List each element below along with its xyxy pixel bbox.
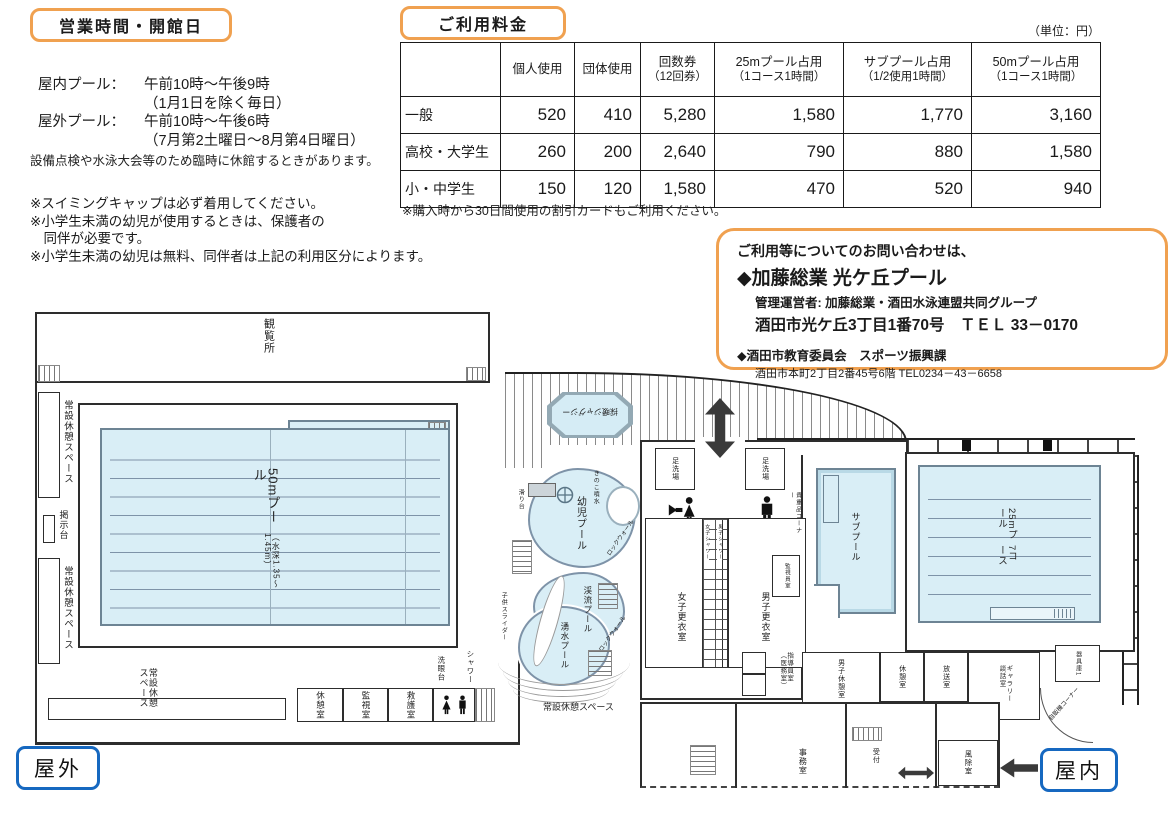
usage-note-line: ※小学生未満の幼児は無料、同伴者は上記の利用区分によります。 [30,248,431,266]
closure-note: 設備点検や水泳大会等のため臨時に休館するときがあります。 [30,150,379,169]
monitor-room-label: 監視員室 [783,563,789,589]
contact-primary-name: ◆加藤総業 光ケ丘プール [737,263,1147,290]
pool50-name: 50mプール [252,468,279,533]
hours-block: 屋内プール：午前10時～午後9時 （1月1日を除く毎日） 屋外プール：午前10時… [38,76,365,150]
usage-note-line: 同伴が必要です。 [30,230,431,248]
contact-operator: 管理運営者: 加藤総業・酒田水泳連盟共同グループ [755,292,1147,311]
hours-row-text: （7月第2土曜日～8月第4日曜日） [144,132,365,151]
reception-label: 受付 [872,748,879,772]
mens-changing-label: 男子更衣室 [760,592,769,656]
pillar [1043,440,1052,451]
stream-stairs-hatch [598,583,618,609]
fees-col-header: 50mプール占用（1コース1時間） [972,43,1101,97]
equipment-room-label: 器具庫1 [1074,651,1080,676]
broadcast-room: 放送室 [924,652,968,702]
fees-col-header: 団体使用 [575,43,641,97]
entrance-arrow-icon [704,398,736,458]
stream-pool-label: 渓流プール [583,586,592,634]
kids-slider-label: 子供スライダー [500,592,506,644]
fee-value: 260 [501,134,575,171]
office-label: 事務室 [798,748,806,784]
foot-wash-room: 足洗場 [745,448,785,490]
outdoor-first-aid-room-label: 救護室 [406,691,415,720]
hours-row-text: 午前10時～午後6時 [144,113,365,132]
outdoor-west-wall [35,383,37,742]
mid-stairs-hatch [512,540,532,574]
pool25-label: 25mプール 7コース [996,508,1016,572]
contact-box: ご利用等についてのお問い合わせは、 ◆加藤総業 光ケ丘プール 管理運営者: 加藤… [716,228,1168,370]
fee-value: 520 [844,171,972,208]
outdoor-south-wall [35,742,520,745]
rest-space-label: 常設休憩スペース [62,400,72,492]
valuables-corner-label: 貴重品コーナー [788,492,801,536]
womens-shower-label: 女子シャワー [704,524,709,568]
gallery-lounge-label: ギャラリー談話室 [997,665,1011,707]
outdoor-first-aid-room: 救護室 [388,688,433,722]
fee-value: 1,580 [972,134,1101,171]
toddler-pool-island [606,486,640,526]
hours-row-text: 午前10時～午後9時 [144,76,365,95]
unit-note: （単位：円） [1028,22,1100,39]
fee-value: 3,160 [972,97,1101,134]
broadcast-room-label: 放送室 [942,665,949,689]
fee-value: 940 [972,171,1101,208]
windbreak-room: 風除室 [938,740,998,786]
hours-title-box: 営業時間・開館日 [30,8,232,42]
pool25-courses: 7コース [996,545,1016,572]
fee-value: 790 [715,134,844,171]
pool50-label: 50mプール （水深1.35～1.45m） [252,468,279,618]
viewing-gallery-label: 観覧所 [262,318,274,380]
pool50-course-line [405,430,406,624]
outdoor-zone-label: 屋外 [34,753,82,783]
fees-col-header: サブプール占用（1/2使用1時間） [844,43,972,97]
woman-icon [441,695,452,715]
rest-space-bottom-box [48,698,286,720]
outdoor-rest-room: 休憩室 [297,688,343,722]
fees-row-label: 一般 [401,97,501,134]
outdoor-watch-room: 監視室 [343,688,388,722]
pool25-name: 25mプール [996,508,1016,545]
hours-row-label [38,132,138,151]
fee-value: 470 [715,171,844,208]
outdoor-toilet-room [433,688,475,722]
indoor-zone-label: 屋内 [1055,755,1103,785]
eye-wash-label: 洗眼台 [437,656,445,686]
mens-rest-room: 男子休憩室 [802,652,880,705]
fees-row: 一般 520 410 5,280 1,580 1,770 3,160 [401,97,1101,134]
rest-space-center-label: 常設休憩スペース [543,700,614,713]
foot-wash-label: 足洗場 [761,457,768,481]
hours-title: 営業時間・開館日 [59,13,203,37]
gallery-stairs-hatch [38,365,60,382]
terrace-deck-strip [505,443,543,468]
store-room [742,674,766,696]
fees-col-header [401,43,501,97]
fee-value: 520 [501,97,575,134]
gallery-stairs-hatch [466,367,486,381]
fees-col-header: 25mプール占用（1コース1時間） [715,43,844,97]
fees-col-header: 個人使用 [501,43,575,97]
rest-space-bottom-label: 常設休憩スペース [138,668,157,714]
toddler-pool-label: 幼児プール [574,496,585,552]
pool25-steps [990,607,1075,620]
instructor-room-label: 指導員室（医務室） [778,652,792,696]
fee-value: 2,640 [641,134,715,171]
sub-pool-label: サブプール [850,512,859,568]
foot-wash-room: 足洗場 [655,448,695,490]
terrace-arc [513,676,609,703]
mens-rest-room-label: 男子休憩室 [837,659,844,699]
windbreak-room-label: 風除室 [964,750,972,776]
fees-title-box: ご利用料金 [400,6,566,40]
foot-wash-label: 足洗場 [671,457,678,481]
sub-pool-lane [823,475,839,523]
notice-board-box [43,515,55,543]
slide-label: 滑り台 [517,489,523,517]
fees-row-label: 高校・大学生 [401,134,501,171]
outdoor-watch-room-label: 監視室 [361,691,370,720]
usage-notes: ※スイミングキャップは必ず着用してください。 ※小学生未満の幼児が使用するときは… [30,195,431,265]
inner-wall [845,702,847,788]
rest-space-box [38,558,60,664]
mushroom-fountain-label: きのこ噴水 [592,470,598,506]
slide-structure [528,483,556,497]
flyer-page: 営業時間・開館日 ご利用料金 （単位：円） 屋内プール：午前10時～午後9時 （… [0,0,1175,815]
contact-secondary-name: ◆酒田市教育委員会 スポーツ振興課 [737,345,1147,364]
contact-secondary-address: 酒田市本町2丁目2番45号6階 TEL0234－43－6658 [755,365,1147,381]
fees-title: ご利用料金 [438,11,528,35]
fountain-icon [556,486,574,504]
fee-value: 880 [844,134,972,171]
notice-board-label: 掲示台 [58,510,67,548]
hours-row-label [38,95,138,114]
man-icon [457,695,468,715]
fee-value: 1,580 [715,97,844,134]
fee-value: 410 [575,97,641,134]
outdoor-stairs-hatch [475,688,495,722]
indoor-zone-badge: 屋内 [1040,748,1118,792]
fees-col-header: 回数券（12回券） [641,43,715,97]
pool50-depth: （水深1.35～1.45m） [252,533,279,618]
mens-shower-label: 男子シャワー [717,524,722,568]
fees-note: ※購入時から30日間使用の割引カードもご利用ください。 [402,200,726,219]
womens-changing-label: 女子更衣室 [676,592,685,656]
inner-wall [735,702,737,788]
pillar [962,440,971,451]
shower-label: シャワー [466,650,474,686]
hours-row-text: （1月1日を除く毎日） [144,95,365,114]
pool25-steps-hatch [1054,609,1072,618]
rest-space-box [38,392,60,498]
office-stairs-hatch [690,745,716,775]
fee-value: 5,280 [641,97,715,134]
outdoor-rest-room-label: 休憩室 [316,691,325,720]
fees-table: 個人使用 団体使用 回数券（12回券） 25mプール占用（1コース1時間） サブ… [400,42,1101,208]
hours-row-label: 屋外プール： [38,113,138,132]
contact-intro: ご利用等についてのお問い合わせは、 [737,241,1147,261]
sub-pool-notch [814,584,840,618]
usage-note-line: ※小学生未満の幼児が使用するときは、保護者の [30,213,431,231]
indoor-rest-room-label: 休憩室 [898,665,905,689]
store-room [742,652,766,674]
fees-row: 高校・大学生 260 200 2,640 790 880 1,580 [401,134,1101,171]
rest-space-label: 常設休憩スペース [62,566,72,658]
outdoor-zone-badge: 屋外 [16,746,100,790]
contact-address-tel: 酒田市光ケ丘3丁目1番70号 ＴＥＬ 33－0170 [755,313,1147,335]
monitor-room: 監視員室 [772,555,800,597]
fee-value: 1,770 [844,97,972,134]
indoor-rest-room: 休憩室 [880,652,924,702]
equipment-room: 器具庫1 [1055,645,1100,682]
hours-row-label: 屋内プール： [38,76,138,95]
inner-wall [935,702,937,788]
jacuzzi-label: 採暖ジャグジー [556,406,624,417]
two-way-arrow-icon [898,766,934,780]
main-entrance-arrow-icon [1000,758,1038,778]
reception-stairs-hatch [852,727,882,741]
fee-value: 200 [575,134,641,171]
usage-note-line: ※スイミングキャップは必ず着用してください。 [30,195,431,213]
